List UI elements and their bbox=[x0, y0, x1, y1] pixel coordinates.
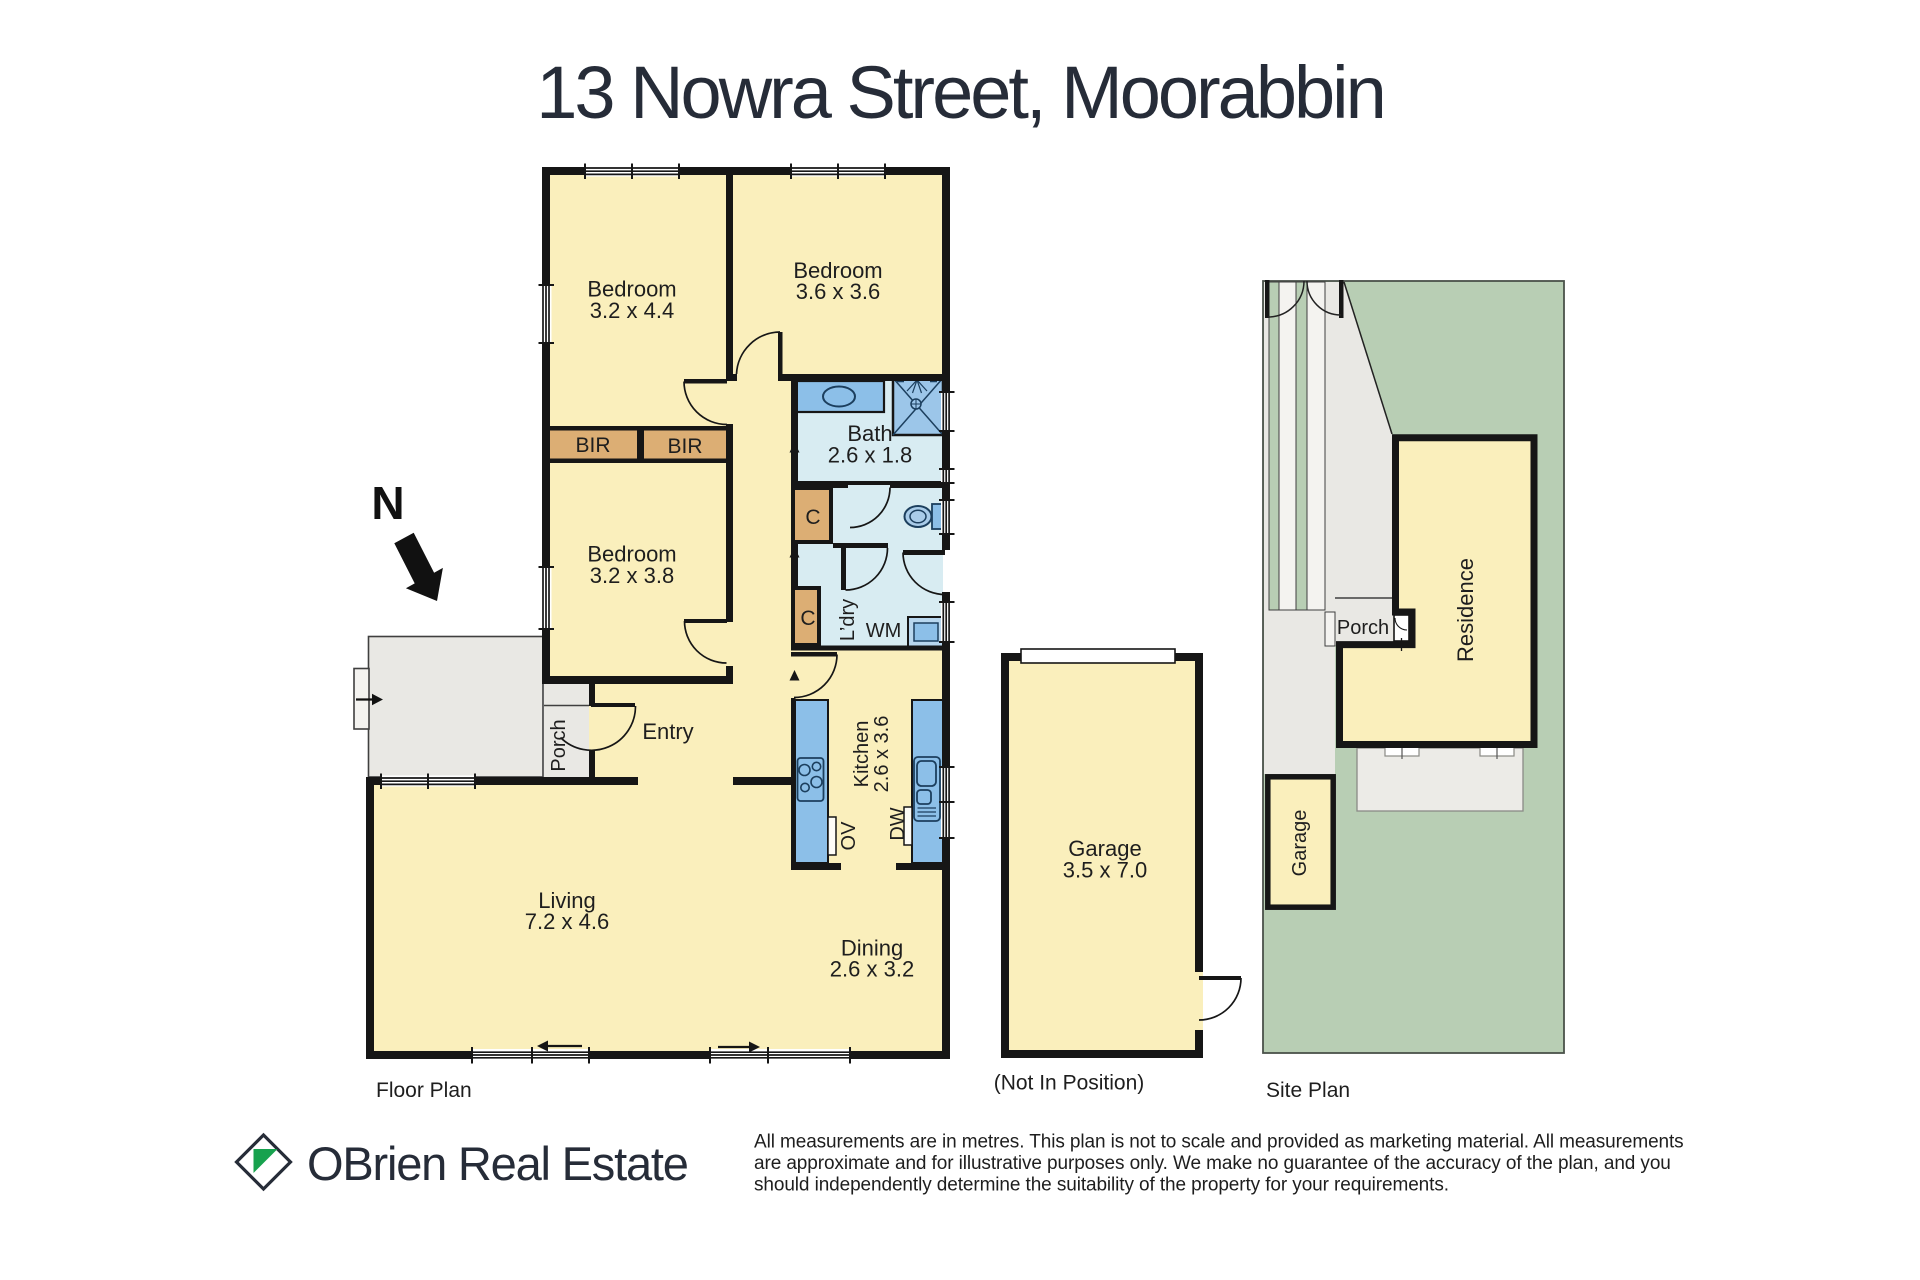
svg-text:Porch: Porch bbox=[548, 719, 570, 771]
svg-text:L’dry: L’dry bbox=[837, 599, 859, 641]
svg-text:C: C bbox=[800, 607, 815, 630]
svg-text:Kitchen: Kitchen bbox=[851, 721, 873, 788]
svg-text:3.5 x 7.0: 3.5 x 7.0 bbox=[1063, 858, 1147, 883]
svg-text:3.2 x 3.8: 3.2 x 3.8 bbox=[590, 563, 674, 588]
svg-text:Garage: Garage bbox=[1289, 810, 1311, 877]
svg-text:N: N bbox=[371, 477, 404, 529]
svg-text:2.6 x 3.2: 2.6 x 3.2 bbox=[830, 957, 914, 982]
svg-text:2.6 x 3.6: 2.6 x 3.6 bbox=[871, 716, 893, 793]
svg-text:3.6 x 3.6: 3.6 x 3.6 bbox=[796, 279, 880, 304]
svg-text:BIR: BIR bbox=[667, 435, 702, 458]
svg-text:C: C bbox=[805, 506, 820, 529]
svg-text:Entry: Entry bbox=[642, 719, 693, 744]
svg-text:Site Plan: Site Plan bbox=[1266, 1079, 1350, 1102]
svg-text:Floor Plan: Floor Plan bbox=[376, 1079, 472, 1102]
svg-text:should independently determine: should independently determine the suita… bbox=[754, 1175, 1449, 1196]
svg-text:OBrien Real Estate: OBrien Real Estate bbox=[307, 1137, 688, 1190]
svg-text:OV: OV bbox=[838, 821, 860, 851]
svg-text:3.2 x 4.4: 3.2 x 4.4 bbox=[590, 298, 674, 323]
svg-text:2.6 x 1.8: 2.6 x 1.8 bbox=[828, 443, 912, 468]
svg-text:are approximate and for illust: are approximate and for illustrative pur… bbox=[754, 1153, 1671, 1174]
svg-text:Porch: Porch bbox=[1337, 617, 1389, 639]
svg-text:7.2 x 4.6: 7.2 x 4.6 bbox=[525, 909, 609, 934]
svg-text:WM: WM bbox=[866, 620, 902, 642]
svg-text:(Not In Position): (Not In Position) bbox=[994, 1072, 1145, 1095]
svg-text:BIR: BIR bbox=[575, 434, 610, 457]
svg-text:All measurements are in metres: All measurements are in metres. This pla… bbox=[754, 1132, 1684, 1153]
svg-text:DW: DW bbox=[887, 807, 909, 840]
svg-text:Residence: Residence bbox=[1453, 558, 1478, 662]
svg-text:13 Nowra Street, Moorabbin: 13 Nowra Street, Moorabbin bbox=[536, 51, 1383, 134]
